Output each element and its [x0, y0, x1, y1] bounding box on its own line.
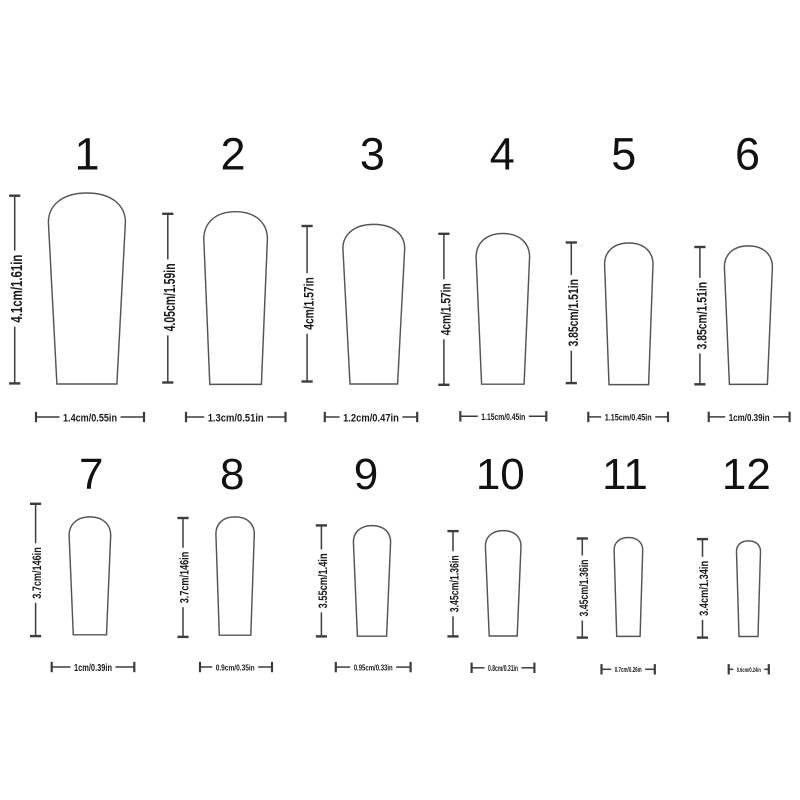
svg-text:4cm/1.57in: 4cm/1.57in — [438, 283, 454, 335]
svg-text:0.6cm/0.24in: 0.6cm/0.24in — [737, 667, 761, 674]
svg-text:0.9cm/0.35in: 0.9cm/0.35in — [216, 662, 255, 672]
svg-text:0.8cm/0.31in: 0.8cm/0.31in — [488, 664, 518, 673]
svg-text:9: 9 — [354, 450, 378, 499]
svg-text:1.15cm/0.45in: 1.15cm/0.45in — [605, 413, 652, 424]
svg-text:3.85cm/1.51in: 3.85cm/1.51in — [565, 279, 581, 347]
svg-text:8: 8 — [220, 450, 244, 499]
svg-text:3: 3 — [360, 128, 385, 179]
svg-text:1: 1 — [74, 128, 99, 179]
svg-text:3.7cm/146in: 3.7cm/146in — [30, 547, 44, 599]
svg-text:1cm/0.39in: 1cm/0.39in — [729, 413, 770, 424]
svg-text:7: 7 — [79, 450, 103, 499]
svg-text:4: 4 — [490, 128, 515, 179]
svg-text:3.55cm/1.4in: 3.55cm/1.4in — [316, 553, 330, 608]
svg-text:3.85cm/1.51in: 3.85cm/1.51in — [694, 282, 710, 350]
svg-text:4.05cm/1.59in: 4.05cm/1.59in — [162, 263, 179, 331]
svg-text:4.1cm/1.61in: 4.1cm/1.61in — [9, 255, 26, 323]
svg-text:1.4cm/0.55in: 1.4cm/0.55in — [63, 412, 117, 424]
svg-text:3.45cm/1.36in: 3.45cm/1.36in — [577, 560, 591, 617]
svg-text:12: 12 — [722, 450, 771, 499]
svg-text:0.7cm/0.26in: 0.7cm/0.26in — [615, 667, 642, 674]
svg-text:4cm/1.57in: 4cm/1.57in — [301, 277, 317, 330]
svg-text:1cm/0.39in: 1cm/0.39in — [74, 662, 112, 674]
svg-text:1.3cm/0.51in: 1.3cm/0.51in — [208, 412, 264, 424]
svg-text:3.45cm/1.36in: 3.45cm/1.36in — [448, 555, 462, 612]
svg-text:10: 10 — [476, 450, 525, 499]
svg-text:0.95cm/0.33in: 0.95cm/0.33in — [354, 663, 393, 673]
svg-text:5: 5 — [611, 128, 636, 179]
svg-text:3.7cm/146in: 3.7cm/146in — [178, 552, 192, 604]
svg-text:1.15cm/0.45in: 1.15cm/0.45in — [481, 412, 525, 422]
svg-text:3.4cm/1.34in: 3.4cm/1.34in — [697, 561, 711, 616]
svg-text:2: 2 — [220, 128, 245, 179]
svg-text:11: 11 — [602, 450, 648, 499]
svg-text:1.2cm/0.47in: 1.2cm/0.47in — [343, 412, 399, 424]
svg-text:6: 6 — [735, 128, 760, 179]
